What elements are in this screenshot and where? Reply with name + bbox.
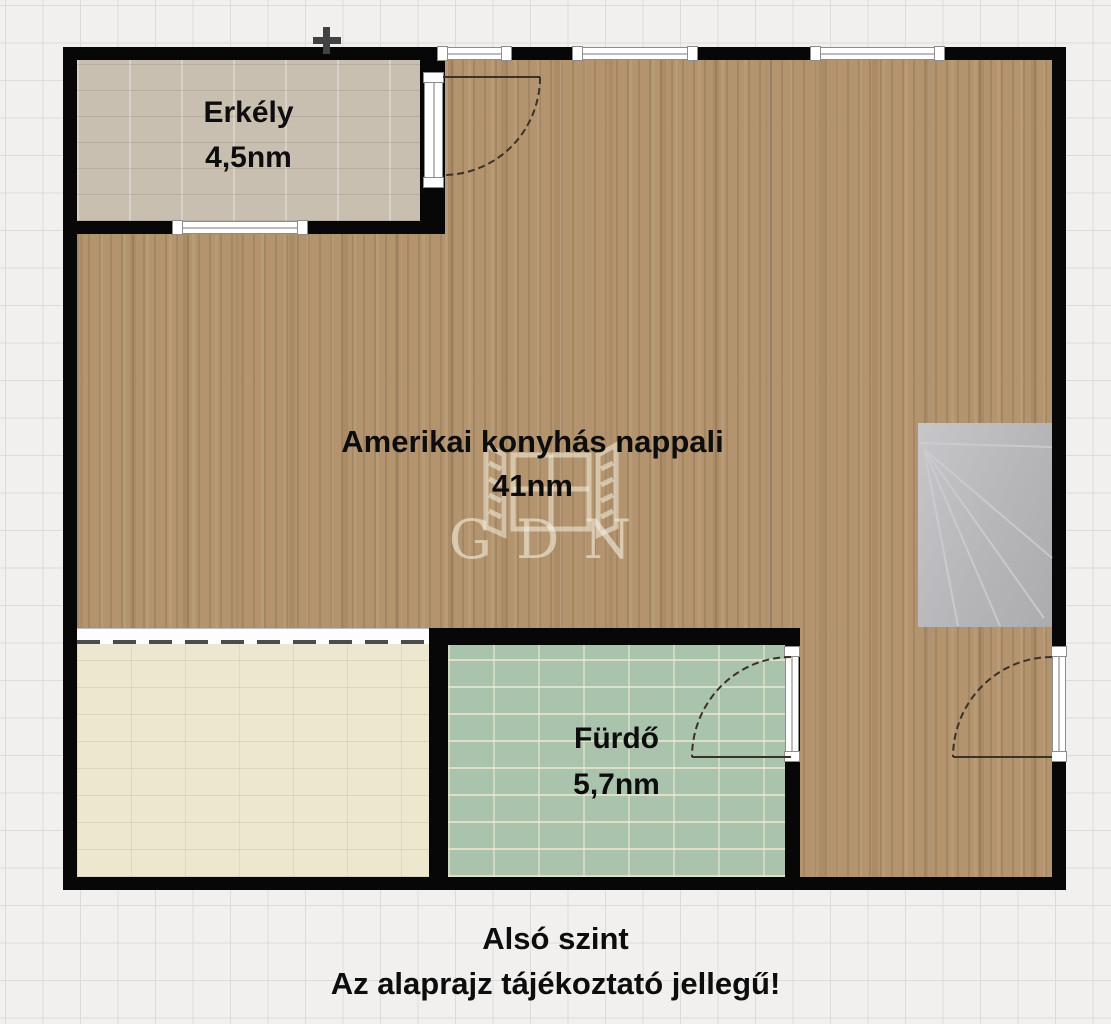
window xyxy=(437,47,512,60)
bathroom-name: Fürdő xyxy=(448,716,785,762)
balcony-door xyxy=(424,72,443,188)
crosshair-icon xyxy=(313,27,341,54)
living-room-name: Amerikai konyhás nappali xyxy=(180,420,885,464)
living-room-area: 41nm xyxy=(180,464,885,508)
living-room-label: Amerikai konyhás nappali 41nm xyxy=(180,420,885,508)
glass-partition xyxy=(77,628,429,644)
stairs xyxy=(918,423,1052,627)
outer-wall-right xyxy=(1052,47,1066,890)
gdn-watermark: GDN xyxy=(352,508,752,571)
entry-door xyxy=(1052,646,1066,762)
bathroom-area: 5,7nm xyxy=(448,762,785,808)
caption-level: Alsó szint xyxy=(0,916,1111,961)
plan-caption: Alsó szint Az alaprajz tájékoztató jelle… xyxy=(0,916,1111,1006)
bathroom-door xyxy=(785,646,799,762)
window xyxy=(572,47,698,60)
outer-wall-left xyxy=(63,47,77,890)
balcony-window xyxy=(172,221,308,234)
balcony-area: 4,5nm xyxy=(77,135,420,180)
balcony-label: Erkély 4,5nm xyxy=(77,90,420,180)
caption-disclaimer: Az alaprajz tájékoztató jellegű! xyxy=(0,961,1111,1006)
window xyxy=(810,47,945,60)
bathroom-wall-top xyxy=(429,628,800,645)
bottom-left-room-floor xyxy=(77,644,429,877)
bathroom-wall-left xyxy=(429,628,448,877)
balcony-name: Erkély xyxy=(77,90,420,135)
bathroom-label: Fürdő 5,7nm xyxy=(448,716,785,808)
floor-plan-canvas: GDN Erkély 4,5nm Amerikai konyhás nappal… xyxy=(0,0,1111,1024)
outer-wall-bottom xyxy=(63,877,1066,890)
